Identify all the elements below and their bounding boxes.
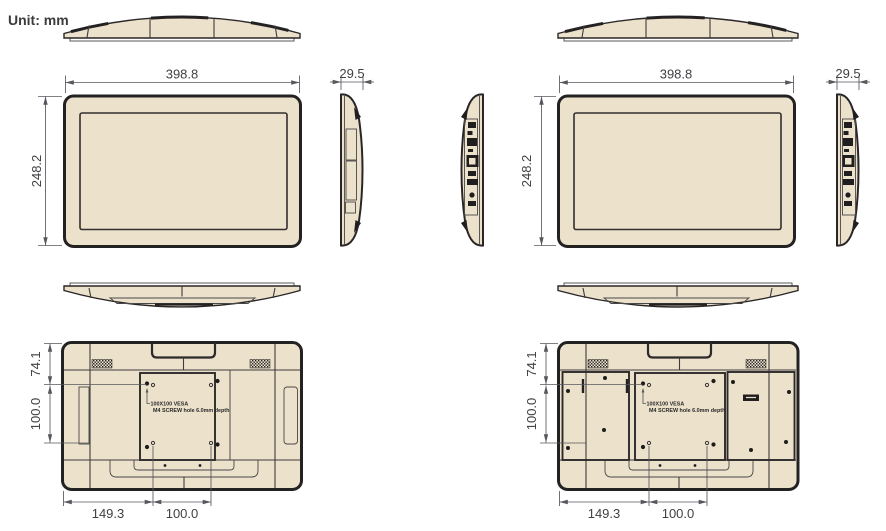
speaker-grille-right xyxy=(250,360,270,369)
dimension-drawing-page: Unit: mm 398.8 248.2 xyxy=(0,0,886,531)
vesa-note-b-line1: 100X100 VESA xyxy=(647,402,685,408)
vesa-note-a-line2: M4 SCREW hole 6.0mm depth xyxy=(153,408,229,414)
dim-vesa-top-b-value: 74.1 xyxy=(524,351,539,376)
recess-screw xyxy=(164,464,167,467)
dim-vesa-horizontal-b-value: 100.0 xyxy=(662,506,695,521)
dim-height-b: 248.2 xyxy=(519,97,556,246)
recess-screw xyxy=(694,464,697,467)
top-view-b xyxy=(558,17,798,41)
dim-width-b-value: 398.8 xyxy=(660,67,693,82)
speaker-grille-right xyxy=(746,360,766,369)
dim-depth-a-value: 29.5 xyxy=(339,66,364,81)
dim-height-a: 248.2 xyxy=(29,97,62,246)
front-bezel xyxy=(65,96,301,247)
dim-depth-b: 29.5 xyxy=(826,66,870,90)
top-view-outline xyxy=(64,17,300,38)
dim-width-b: 398.8 xyxy=(560,67,794,94)
dim-width-a: 398.8 xyxy=(66,67,300,94)
dim-height-b-value: 248.2 xyxy=(519,155,534,188)
speaker-grille-left xyxy=(92,360,112,369)
bottom-view-b xyxy=(558,283,798,307)
side-view-b-left xyxy=(461,94,483,245)
rear-view-b: 100X100 VESA M4 SCREW hole 6.0mm depth xyxy=(559,343,799,490)
view-set-a: 398.8 248.2 29.5 xyxy=(28,17,374,521)
technical-drawing-canvas: Unit: mm 398.8 248.2 xyxy=(0,0,886,531)
bottom-view-a xyxy=(64,283,300,307)
dim-height-a-value: 248.2 xyxy=(29,155,44,188)
side-view-b-right xyxy=(837,94,859,245)
vesa-note-a-line1: 100X100 VESA xyxy=(151,402,189,408)
side-view-a xyxy=(341,94,363,245)
view-set-b: 398.8 248.2 xyxy=(461,17,870,521)
front-bezel xyxy=(559,96,795,247)
dim-width-a-value: 398.8 xyxy=(166,67,199,82)
front-view-a xyxy=(65,96,301,247)
dim-vesa-horizontal-a-value: 100.0 xyxy=(166,506,199,521)
speaker-grille-left xyxy=(588,360,608,369)
front-view-b xyxy=(559,96,795,247)
recess-screw xyxy=(199,464,202,467)
top-view-outline xyxy=(558,17,798,38)
vesa-note-b-line2: M4 SCREW hole 6.0mm depth xyxy=(649,408,725,414)
dim-depth-b-value: 29.5 xyxy=(835,66,860,81)
dim-vesa-vertical-b-value: 100.0 xyxy=(524,398,539,431)
top-view-a xyxy=(64,17,300,41)
dim-vesa-left-a-value: 149.3 xyxy=(92,506,125,521)
dim-vesa-top-a-value: 74.1 xyxy=(28,351,43,376)
unit-label: Unit: mm xyxy=(8,12,69,28)
dim-depth-a: 29.5 xyxy=(330,66,374,90)
dim-vesa-left-b-value: 149.3 xyxy=(588,506,621,521)
dim-vesa-vertical-a-value: 100.0 xyxy=(28,398,43,431)
rear-view-a: 100X100 VESA M4 SCREW hole 6.0mm depth xyxy=(63,343,302,490)
recess-screw xyxy=(659,464,662,467)
